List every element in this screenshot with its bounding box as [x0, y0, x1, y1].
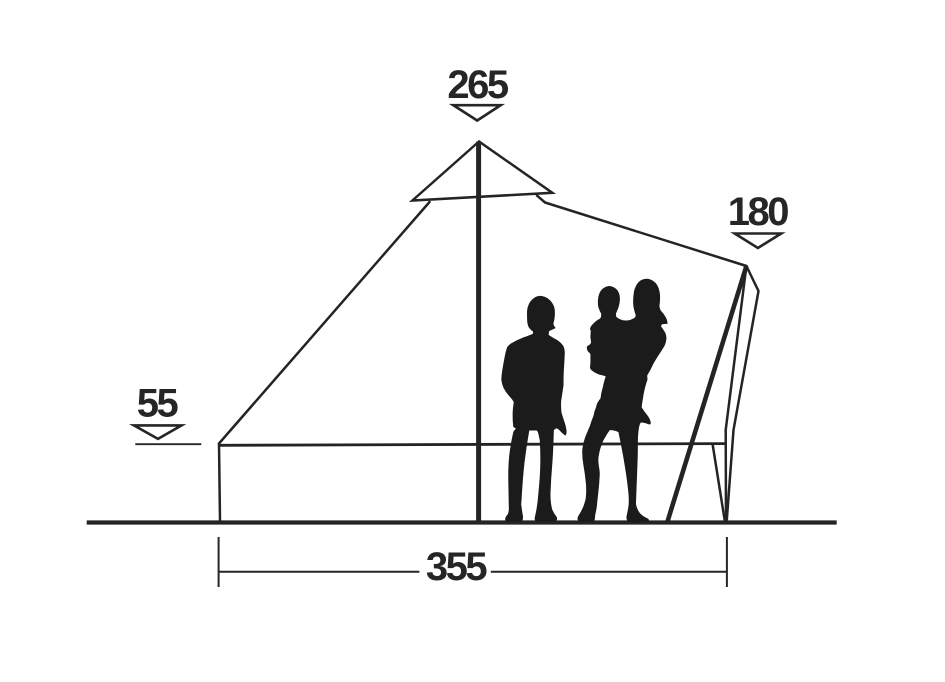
svg-text:355: 355 [426, 545, 487, 589]
svg-text:55: 55 [137, 382, 179, 426]
svg-text:265: 265 [447, 63, 508, 107]
svg-text:180: 180 [728, 190, 788, 234]
